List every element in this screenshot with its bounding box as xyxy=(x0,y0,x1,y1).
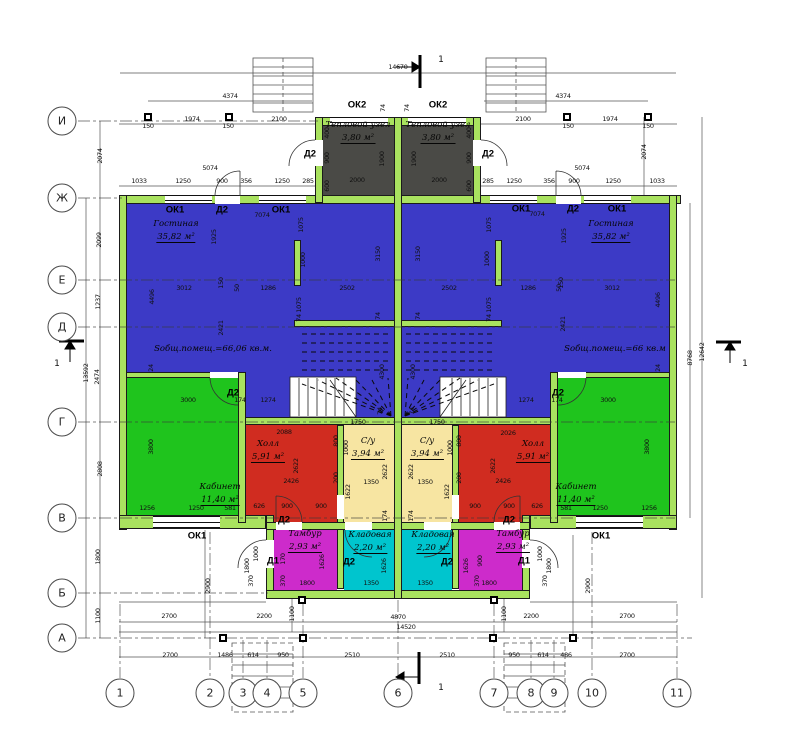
opening-tag-Д2: Д2 xyxy=(227,388,239,399)
section-label: 1 xyxy=(438,683,444,693)
room-name: Холл xyxy=(516,438,550,451)
window-opening xyxy=(165,195,212,204)
dimension-label: 626 xyxy=(253,502,265,510)
dimension-label: 400 xyxy=(323,127,331,139)
dimension-label: 2100 xyxy=(515,115,530,123)
plan-linework-layer xyxy=(0,0,800,746)
opening-tag-Д2: Д2 xyxy=(343,557,355,568)
dimension-label: 2700 xyxy=(161,612,176,620)
total-area-right: Sобщ.помещ.=66 кв.м xyxy=(564,344,666,354)
dimension-label: 5074 xyxy=(574,164,589,172)
dimension-label: 150 xyxy=(222,122,234,130)
column-post xyxy=(490,596,498,604)
dimension-label: 1974 xyxy=(602,115,617,123)
room-area: 3,94 м² xyxy=(351,449,385,460)
dimension-label: 4300 xyxy=(409,364,417,379)
dimension-label: 1000 xyxy=(252,546,260,561)
dimension-label: 1250 xyxy=(592,504,607,512)
dimension-label: 1486 xyxy=(217,651,232,659)
dimension-label: 950 xyxy=(508,651,520,659)
dimension-label: 2502 xyxy=(339,284,354,292)
dimension-label: 1250 xyxy=(188,504,203,512)
dimension-label: 1350 xyxy=(417,478,432,486)
opening-tag-ОК1: ОК1 xyxy=(188,531,206,542)
room-area: 3,94 м² xyxy=(410,449,444,460)
dimension-label: 2426 xyxy=(283,477,298,485)
dimension-label: 174 xyxy=(381,510,389,522)
room-label-storage-right: Кладовая2,20 м² xyxy=(411,529,454,555)
dimension-label: 1075 xyxy=(485,217,493,232)
dimension-label: 614 xyxy=(247,651,259,659)
column-post xyxy=(569,634,577,642)
room-area: 2,93 м² xyxy=(288,542,322,553)
dimension-label: 1000 xyxy=(483,251,491,266)
dimension-label: 1925 xyxy=(210,229,218,244)
room-name: С/у xyxy=(410,435,444,448)
dimension-label: 2074 xyxy=(96,148,104,163)
opening-tag-ОК1: ОК1 xyxy=(512,204,530,215)
dimension-label: 1075 xyxy=(485,297,493,312)
dimension-label: 600 xyxy=(323,180,331,192)
dimension-label: 285 xyxy=(482,177,494,185)
column-post xyxy=(225,113,233,121)
dimension-label: 600 xyxy=(465,180,473,192)
dimension-label: 2426 xyxy=(495,477,510,485)
room-label-vestibule-right: Тамбур2,93 м² xyxy=(496,528,530,554)
dimension-label: 1256 xyxy=(641,504,656,512)
dimension-label: 614 xyxy=(537,651,549,659)
dimension-label: 1100 xyxy=(94,608,102,623)
dimension-label: 8768 xyxy=(686,350,694,365)
dimension-label: 400 xyxy=(465,127,473,139)
dimension-label: 74 xyxy=(414,312,422,320)
dimension-label: 2100 xyxy=(271,115,286,123)
dimension-label: 1974 xyxy=(184,115,199,123)
dimension-label: 1075 xyxy=(297,217,305,232)
dimension-label: 74 xyxy=(295,314,303,322)
dimension-label: 4496 xyxy=(654,292,662,307)
dimension-label: 2099 xyxy=(95,232,103,247)
door-opening xyxy=(210,372,238,378)
column-post xyxy=(298,596,306,604)
dimension-label: 2502 xyxy=(441,284,456,292)
dimension-label: 626 xyxy=(531,502,543,510)
dimension-label: 1286 xyxy=(520,284,535,292)
opening-tag-Д1: Д1 xyxy=(518,556,530,567)
dimension-label: 50 xyxy=(233,284,241,292)
dimension-label: 2000 xyxy=(349,176,364,184)
dimension-label: 1750 xyxy=(429,418,444,426)
dimension-label: 150 xyxy=(217,277,225,289)
dimension-label: 2200 xyxy=(256,612,271,620)
room-name: Тамбур xyxy=(288,528,322,541)
door-opening xyxy=(452,495,459,519)
room-area: 2,20 м² xyxy=(416,543,450,554)
dimension-label: 1000 xyxy=(342,440,350,455)
dimension-label: 1256 xyxy=(139,504,154,512)
dimension-label: 150 xyxy=(642,122,654,130)
dimension-label: 74 xyxy=(379,104,387,112)
dimension-label: 1622 xyxy=(443,484,451,499)
dimension-label: 4496 xyxy=(148,289,156,304)
dimension-label: 1626 xyxy=(380,558,388,573)
room-name: Тамбур xyxy=(496,528,530,541)
dimension-label: 1925 xyxy=(560,228,568,243)
room-name: Кабинет xyxy=(200,481,241,494)
dimension-label: 1800 xyxy=(94,549,102,564)
dimension-label: 2622 xyxy=(489,458,497,473)
dimension-label: 7074 xyxy=(254,211,269,219)
opening-tag-ОК1: ОК1 xyxy=(608,204,626,215)
opening-tag-Д2: Д2 xyxy=(482,149,494,160)
dimension-label: 1075 xyxy=(295,297,303,312)
section-markers xyxy=(59,55,741,684)
dimension-label: 2622 xyxy=(407,464,415,479)
dimension-label: 1000 xyxy=(536,546,544,561)
axis-marker-col-2: 2 xyxy=(196,679,225,708)
opening-tag-Д2: Д2 xyxy=(567,204,579,215)
room-label-storage-left: Кладовая2,20 м² xyxy=(348,529,391,555)
opening-tag-Д2: Д2 xyxy=(304,149,316,160)
room-label-hall-left: Холл5,91 м² xyxy=(251,438,285,464)
room-label-vestibule-left: Тамбур2,93 м² xyxy=(288,528,322,554)
column-post xyxy=(219,634,227,642)
dimension-label: 1033 xyxy=(131,177,146,185)
dimension-label: 174 xyxy=(407,510,415,522)
axis-marker-col-6: 6 xyxy=(384,679,413,708)
window-opening xyxy=(153,516,220,528)
dimension-label: 200 xyxy=(332,472,340,484)
dimension-label: 1622 xyxy=(344,484,352,499)
opening-tag-ОК2: ОК2 xyxy=(348,100,366,111)
dimension-label: 1250 xyxy=(175,177,190,185)
axis-marker-row-Б: Б xyxy=(48,579,77,608)
room-name: С/у xyxy=(351,435,385,448)
dimension-label: 1350 xyxy=(417,579,432,587)
column-post xyxy=(563,113,571,121)
room-name: Гостиная xyxy=(588,218,633,231)
opening-tag-Д2: Д2 xyxy=(552,388,564,399)
opening-tag-ОК2: ОК2 xyxy=(429,100,447,111)
room-label-heat-unit-right: Тепловой узел3,80 м² xyxy=(406,119,471,145)
column-post xyxy=(489,634,497,642)
dimension-label: 2900 xyxy=(204,578,212,593)
dimension-label: 900 xyxy=(476,555,484,567)
dimension-label: 1800 xyxy=(299,579,314,587)
room-area: 5,91 м² xyxy=(516,452,550,463)
dimension-label: 900 xyxy=(465,152,473,164)
dimension-label: 356 xyxy=(543,177,555,185)
room-name: Кабинет xyxy=(556,481,597,494)
axis-marker-col-5: 5 xyxy=(289,679,318,708)
dimension-label: 2000 xyxy=(431,176,446,184)
dimension-label: 2088 xyxy=(276,428,291,436)
dimension-label: 1100 xyxy=(288,606,296,621)
door-opening xyxy=(315,140,323,166)
dimension-label: 14520 xyxy=(396,623,415,631)
room-area: 2,20 м² xyxy=(353,543,387,554)
room-name: Холл xyxy=(251,438,285,451)
room-label-living-left: Гостиная35,82 м² xyxy=(153,218,198,244)
room-label-bathroom-left: С/у3,94 м² xyxy=(351,435,385,461)
window-opening xyxy=(576,516,643,528)
dimension-label: 3800 xyxy=(147,439,155,454)
opening-tag-Д2: Д2 xyxy=(503,515,515,526)
dimension-label: 2421 xyxy=(217,320,225,335)
dimension-label: 486 xyxy=(560,651,572,659)
dimension-label: 581 xyxy=(560,504,572,512)
column-post xyxy=(644,113,652,121)
door-opening xyxy=(337,495,344,519)
dimension-label: 74 xyxy=(374,312,382,320)
dimension-label: 2510 xyxy=(439,651,454,659)
dimension-label: 2026 xyxy=(500,429,515,437)
dimension-label: 900 xyxy=(315,502,327,510)
dimension-label: 2074 xyxy=(640,144,648,159)
dimension-label: 1250 xyxy=(506,177,521,185)
dimension-label: 1350 xyxy=(363,478,378,486)
dimension-label: 1237 xyxy=(94,294,102,309)
dimension-label: 370 xyxy=(279,575,287,587)
section-label: 1 xyxy=(438,55,444,65)
dimension-label: 4374 xyxy=(555,92,570,100)
dimension-label: 1626 xyxy=(462,558,470,573)
dimension-label: 2474 xyxy=(93,369,101,384)
dimension-label: 1750 xyxy=(350,418,365,426)
dimension-label: 900 xyxy=(216,177,228,185)
dimension-label: 1000 xyxy=(446,440,454,455)
room-label-hall-right: Холл5,91 м² xyxy=(516,438,550,464)
dimension-label: 2510 xyxy=(344,651,359,659)
dimension-label: 1800 xyxy=(545,558,553,573)
dimension-label: 2421 xyxy=(559,316,567,331)
dimension-label: 900 xyxy=(323,152,331,164)
axis-marker-col-10: 10 xyxy=(578,679,607,708)
dimension-label: 14670 xyxy=(388,63,407,71)
opening-tag-Д2: Д2 xyxy=(441,557,453,568)
door-opening xyxy=(558,372,586,378)
exterior-stair-top-left xyxy=(253,58,313,112)
opening-tag-ОК1: ОК1 xyxy=(272,205,290,216)
dimension-label: 950 xyxy=(277,651,289,659)
axis-marker-col-4: 4 xyxy=(253,679,282,708)
opening-tag-ОК1: ОК1 xyxy=(592,531,610,542)
room-label-living-right: Гостиная35,82 м² xyxy=(588,218,633,244)
dimension-label: 1626 xyxy=(318,554,326,569)
dimension-label: 150 xyxy=(142,122,154,130)
dimension-label: 2808 xyxy=(96,461,104,476)
room-area: 3,80 м² xyxy=(421,133,455,144)
dimension-label: 74 xyxy=(485,314,493,322)
dimension-label: 1274 xyxy=(518,396,533,404)
dimension-label: 2700 xyxy=(619,651,634,659)
room-area: 35,82 м² xyxy=(591,232,631,243)
dimension-label: 4374 xyxy=(222,92,237,100)
door-opening xyxy=(473,140,481,166)
dimension-label: 74 xyxy=(376,407,384,415)
section-label: 1 xyxy=(742,359,748,369)
dimension-label: 4870 xyxy=(390,613,405,621)
dimension-label: 2700 xyxy=(162,651,177,659)
room-area: 3,80 м² xyxy=(341,133,375,144)
opening-tag-Д2: Д2 xyxy=(278,515,290,526)
dimension-label: 150 xyxy=(562,122,574,130)
dimension-label: 285 xyxy=(302,177,314,185)
dimension-label: 200 xyxy=(455,472,463,484)
dimension-label: 12642 xyxy=(698,342,706,361)
dimension-label: 2622 xyxy=(381,464,389,479)
dimension-label: 74 xyxy=(408,407,416,415)
dimension-label: 900 xyxy=(281,502,293,510)
room-name: Тепловой узел xyxy=(406,119,471,132)
dimension-label: 7074 xyxy=(529,210,544,218)
dimension-label: 581 xyxy=(224,504,236,512)
axis-marker-col-9: 9 xyxy=(540,679,569,708)
axis-marker-row-И: И xyxy=(48,107,77,136)
room-label-heat-unit-left: Тепловой узел3,80 м² xyxy=(326,119,391,145)
dimension-label: 1250 xyxy=(274,177,289,185)
room-name: Кладовая xyxy=(348,529,391,542)
total-area-left: Sобщ.помещ.=66,06 кв.м. xyxy=(154,344,272,354)
dimension-label: 1274 xyxy=(260,396,275,404)
dimension-label: 1800 xyxy=(481,579,496,587)
dimension-label: 50 xyxy=(555,284,563,292)
dimension-label: 800 xyxy=(332,435,340,447)
room-name: Гостиная xyxy=(153,218,198,231)
floor-plan-canvas: Тепловой узел3,80 м²Тепловой узел3,80 м²… xyxy=(0,0,800,746)
axis-marker-row-Г: Г xyxy=(48,408,77,437)
axis-marker-col-1: 1 xyxy=(106,679,135,708)
dimension-label: 170 xyxy=(279,553,287,565)
dimension-label: 74 xyxy=(403,104,411,112)
dimension-label: 2700 xyxy=(619,612,634,620)
dimension-label: 1800 xyxy=(243,558,251,573)
dimension-label: 370 xyxy=(247,575,255,587)
dimension-label: 1900 xyxy=(378,151,386,166)
axis-marker-row-Ж: Ж xyxy=(48,184,77,213)
dimension-label: 13592 xyxy=(82,363,90,382)
door-opening xyxy=(215,196,240,204)
dimension-label: 1286 xyxy=(260,284,275,292)
dimension-label: 3000 xyxy=(600,396,615,404)
dimension-label: 1033 xyxy=(649,177,664,185)
room-name: Кладовая xyxy=(411,529,454,542)
dimension-label: 3150 xyxy=(374,246,382,261)
dimension-label: 370 xyxy=(541,575,549,587)
dimension-label: 3012 xyxy=(604,284,619,292)
dimension-label: 5074 xyxy=(202,164,217,172)
axis-marker-row-В: В xyxy=(48,504,77,533)
dimension-label: 900 xyxy=(503,502,515,510)
axis-marker-row-Д: Д xyxy=(48,313,77,342)
dimension-label: 1900 xyxy=(410,151,418,166)
dimension-label: 356 xyxy=(240,177,252,185)
dimension-label: 1250 xyxy=(605,177,620,185)
room-area: 5,91 м² xyxy=(251,452,285,463)
dimension-label: 800 xyxy=(455,435,463,447)
dimension-label: 900 xyxy=(568,177,580,185)
room-area: 35,82 м² xyxy=(156,232,196,243)
opening-tag-Д1: Д1 xyxy=(267,556,279,567)
dimension-label: 3800 xyxy=(643,439,651,454)
column-post xyxy=(144,113,152,121)
dimension-label: 24 xyxy=(147,364,155,372)
axis-marker-row-А: А xyxy=(48,624,77,653)
room-label-bathroom-right: С/у3,94 м² xyxy=(410,435,444,461)
axis-marker-col-11: 11 xyxy=(663,679,692,708)
column-post xyxy=(299,634,307,642)
dimension-label: 1000 xyxy=(299,252,307,267)
exterior-stair-top-right xyxy=(486,58,546,112)
dimension-label: 24 xyxy=(654,364,662,372)
dimension-label: 2900 xyxy=(584,578,592,593)
dimension-label: 3150 xyxy=(414,246,422,261)
opening-tag-Д2: Д2 xyxy=(216,205,228,216)
window-opening xyxy=(259,195,306,204)
dimension-label: 1350 xyxy=(363,579,378,587)
dimension-label: 1100 xyxy=(500,606,508,621)
dimension-label: 900 xyxy=(469,502,481,510)
room-name: Тепловой узел xyxy=(326,119,391,132)
axis-marker-row-Е: Е xyxy=(48,266,77,295)
dimension-label: 2200 xyxy=(523,612,538,620)
dimension-label: 370 xyxy=(473,575,481,587)
section-label: 1 xyxy=(54,359,60,369)
axis-marker-col-7: 7 xyxy=(480,679,509,708)
dimension-label: 3000 xyxy=(180,396,195,404)
opening-tag-ОК1: ОК1 xyxy=(166,205,184,216)
dimension-label: 3012 xyxy=(176,284,191,292)
dimension-label: 4300 xyxy=(378,364,386,379)
room-area: 2,93 м² xyxy=(496,542,530,553)
dimension-label: 2622 xyxy=(292,458,300,473)
